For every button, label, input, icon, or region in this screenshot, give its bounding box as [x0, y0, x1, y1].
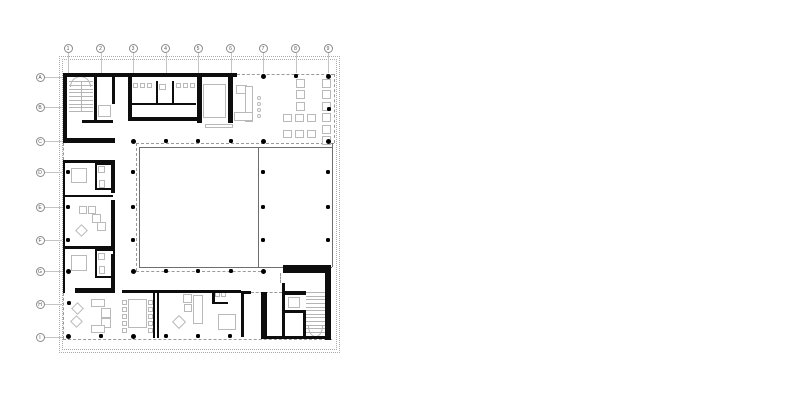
- wall-segment: [63, 73, 237, 77]
- furniture-item: [97, 222, 106, 231]
- grid-leader-col: [231, 53, 232, 73]
- grid-leader-col: [166, 53, 167, 73]
- column-dot-small: [131, 238, 134, 241]
- wall-segment: [261, 292, 267, 338]
- furniture-stool: [257, 96, 261, 100]
- column-dot-small: [261, 238, 264, 241]
- column-dot-small: [164, 269, 167, 272]
- wall-segment: [228, 77, 233, 123]
- column-dot-large: [261, 269, 266, 274]
- wall-segment: [122, 290, 241, 293]
- bathroom-enclosure: [95, 249, 115, 278]
- furniture-item: [183, 294, 192, 303]
- grid-leader-col: [296, 53, 297, 73]
- furniture-item: [133, 83, 138, 88]
- column-dot-large: [261, 74, 266, 79]
- furniture-item: [122, 321, 127, 326]
- wall-segment: [303, 310, 306, 338]
- furniture-item: [91, 299, 105, 307]
- facade-dashed-line: [63, 339, 332, 340]
- column-dot-small: [261, 170, 264, 173]
- wall-segment: [325, 265, 331, 340]
- wall-segment: [130, 103, 196, 105]
- column-dot-small: [326, 238, 329, 241]
- furniture-item: [122, 314, 127, 319]
- furniture-item: [101, 308, 111, 318]
- furniture-item: [147, 83, 152, 88]
- grid-leader-row: [45, 77, 62, 78]
- grid-bubble-row-D: D: [36, 168, 45, 177]
- wall-segment: [283, 265, 330, 273]
- furniture-item: [288, 297, 300, 308]
- courtyard-edge-line: [139, 147, 140, 267]
- column-dot-small: [294, 74, 297, 77]
- furniture-item: [159, 84, 166, 90]
- architectural-sheet: 123456789ABCDEFGHI: [0, 0, 800, 416]
- stair-tread: [306, 299, 325, 300]
- furniture-item: [322, 113, 331, 122]
- furniture-item: [184, 304, 192, 312]
- column-dot-small: [196, 334, 199, 337]
- column-dot-large: [131, 139, 136, 144]
- facade-dashed-line: [280, 273, 281, 283]
- furniture-item: [295, 114, 304, 122]
- furniture-item: [322, 79, 331, 88]
- column-dot-small: [196, 269, 199, 272]
- column-dot-small: [196, 139, 199, 142]
- courtyard-edge-line: [258, 147, 259, 267]
- column-dot-small: [326, 205, 329, 208]
- furniture-item: [71, 168, 87, 183]
- facade-dashed-line: [136, 143, 334, 144]
- grid-leader-row: [45, 141, 62, 142]
- column-dot-small: [66, 170, 69, 173]
- stair-tread: [306, 292, 325, 293]
- grid-leader-col: [198, 53, 199, 73]
- column-dot-small: [229, 269, 232, 272]
- furniture-item: [128, 299, 147, 328]
- wall-segment: [197, 77, 202, 123]
- furniture-item: [193, 295, 203, 324]
- stair-tread: [306, 314, 325, 315]
- wall-segment: [63, 73, 67, 143]
- facade-dashed-line: [136, 143, 137, 271]
- column-dot-small: [164, 139, 167, 142]
- bathroom-enclosure: [95, 163, 115, 190]
- wall-segment: [82, 120, 113, 123]
- wall-segment: [261, 336, 331, 339]
- column-dot-large: [66, 269, 71, 274]
- wall-segment: [128, 117, 198, 121]
- grid-bubble-column-9: 9: [324, 44, 333, 53]
- furniture-item: [322, 90, 331, 99]
- column-dot-small: [131, 170, 134, 173]
- furniture-item: [218, 314, 236, 330]
- grid-bubble-row-A: A: [36, 73, 45, 82]
- grid-leader-col: [133, 53, 134, 73]
- grid-bubble-column-4: 4: [161, 44, 170, 53]
- grid-leader-row: [45, 107, 62, 108]
- grid-bubble-column-6: 6: [226, 44, 235, 53]
- grid-bubble-row-E: E: [36, 203, 45, 212]
- grid-leader-row: [45, 304, 62, 305]
- wall-segment: [75, 288, 115, 293]
- floor-plan: 123456789ABCDEFGHI: [0, 0, 800, 416]
- grid-bubble-row-F: F: [36, 236, 45, 245]
- stair-tread: [306, 317, 325, 318]
- column-dot-large: [131, 334, 136, 339]
- column-dot-small: [67, 301, 70, 304]
- column-dot-small: [66, 205, 69, 208]
- wall-segment: [63, 160, 65, 293]
- grid-leader-col: [101, 53, 102, 73]
- column-dot-small: [228, 334, 231, 337]
- furniture-item: [234, 112, 253, 121]
- grid-leader-col: [263, 53, 264, 73]
- furniture-item: [295, 130, 304, 138]
- furniture-stool: [257, 102, 261, 106]
- wall-segment: [241, 292, 244, 337]
- facade-dashed-line: [63, 143, 64, 160]
- grid-bubble-column-8: 8: [291, 44, 300, 53]
- wall-segment: [157, 292, 159, 338]
- stair-tread: [306, 321, 325, 322]
- column-dot-large: [66, 334, 71, 339]
- grid-leader-row: [45, 207, 62, 208]
- grid-leader-row: [45, 240, 62, 241]
- wall-segment: [285, 291, 306, 295]
- grid-leader-col: [68, 53, 69, 73]
- stair-tread: [306, 303, 325, 304]
- column-dot-small: [164, 334, 167, 337]
- column-dot-small: [327, 107, 330, 110]
- grid-bubble-column-2: 2: [96, 44, 105, 53]
- furniture-item: [71, 255, 87, 271]
- stair-tread: [306, 296, 325, 297]
- furniture-item: [190, 83, 195, 88]
- furniture-item: [307, 114, 316, 122]
- furniture-item: [183, 83, 188, 88]
- furniture-item: [307, 130, 316, 138]
- column-dot-small: [229, 139, 232, 142]
- furniture-item: [283, 130, 292, 138]
- grid-bubble-row-B: B: [36, 103, 45, 112]
- column-dot-large: [326, 74, 331, 79]
- wall-segment: [172, 81, 174, 103]
- column-dot-small: [131, 205, 134, 208]
- grid-bubble-row-G: G: [36, 267, 45, 276]
- grid-bubble-row-C: C: [36, 137, 45, 146]
- furniture-item: [205, 124, 233, 128]
- furniture-item: [203, 84, 226, 118]
- furniture-item: [176, 83, 181, 88]
- column-dot-large: [261, 139, 266, 144]
- column-dot-large: [326, 139, 331, 144]
- wall-segment: [63, 195, 113, 197]
- furniture-item: [122, 328, 127, 333]
- wall-segment: [156, 81, 158, 103]
- column-dot-small: [66, 238, 69, 241]
- furniture-stool: [257, 114, 261, 118]
- wall-segment: [63, 138, 115, 143]
- grid-leader-row: [45, 172, 62, 173]
- column-dot-large: [131, 269, 136, 274]
- furniture-item: [98, 105, 111, 117]
- column-dot-small: [261, 205, 264, 208]
- grid-bubble-row-H: H: [36, 300, 45, 309]
- wall-segment: [111, 200, 115, 247]
- facade-dashed-line: [63, 293, 64, 339]
- grid-leader-row: [45, 337, 62, 338]
- furniture-item: [296, 102, 305, 111]
- facade-dashed-line: [237, 74, 334, 75]
- wall-segment: [212, 302, 228, 304]
- grid-bubble-column-5: 5: [194, 44, 203, 53]
- grid-bubble-column-3: 3: [129, 44, 138, 53]
- column-dot-small: [99, 334, 102, 337]
- grid-bubble-row-I: I: [36, 333, 45, 342]
- furniture-item: [283, 114, 292, 122]
- grid-bubble-column-7: 7: [259, 44, 268, 53]
- column-dot-small: [326, 170, 329, 173]
- furniture-item: [322, 125, 331, 134]
- grid-leader-row: [45, 271, 62, 272]
- stair-tread: [69, 111, 93, 112]
- furniture-stool: [257, 108, 261, 112]
- wall-segment: [153, 292, 155, 338]
- facade-dashed-line: [334, 74, 335, 143]
- furniture-item: [91, 325, 105, 333]
- courtyard-edge-line: [332, 143, 333, 267]
- furniture-item: [122, 307, 127, 312]
- furniture-item: [296, 90, 305, 99]
- wall-segment: [112, 77, 115, 104]
- furniture-item: [140, 83, 145, 88]
- furniture-item: [79, 206, 87, 214]
- wall-segment: [128, 77, 132, 121]
- stair-tread: [306, 310, 325, 311]
- furniture-item: [122, 300, 127, 305]
- grid-bubble-column-1: 1: [64, 44, 73, 53]
- grid-leader-col: [328, 53, 329, 73]
- furniture-item: [296, 79, 305, 88]
- stair-tread: [306, 307, 325, 308]
- wall-segment: [94, 73, 97, 123]
- furniture-item: [88, 206, 96, 214]
- courtyard-edge-line: [139, 147, 332, 148]
